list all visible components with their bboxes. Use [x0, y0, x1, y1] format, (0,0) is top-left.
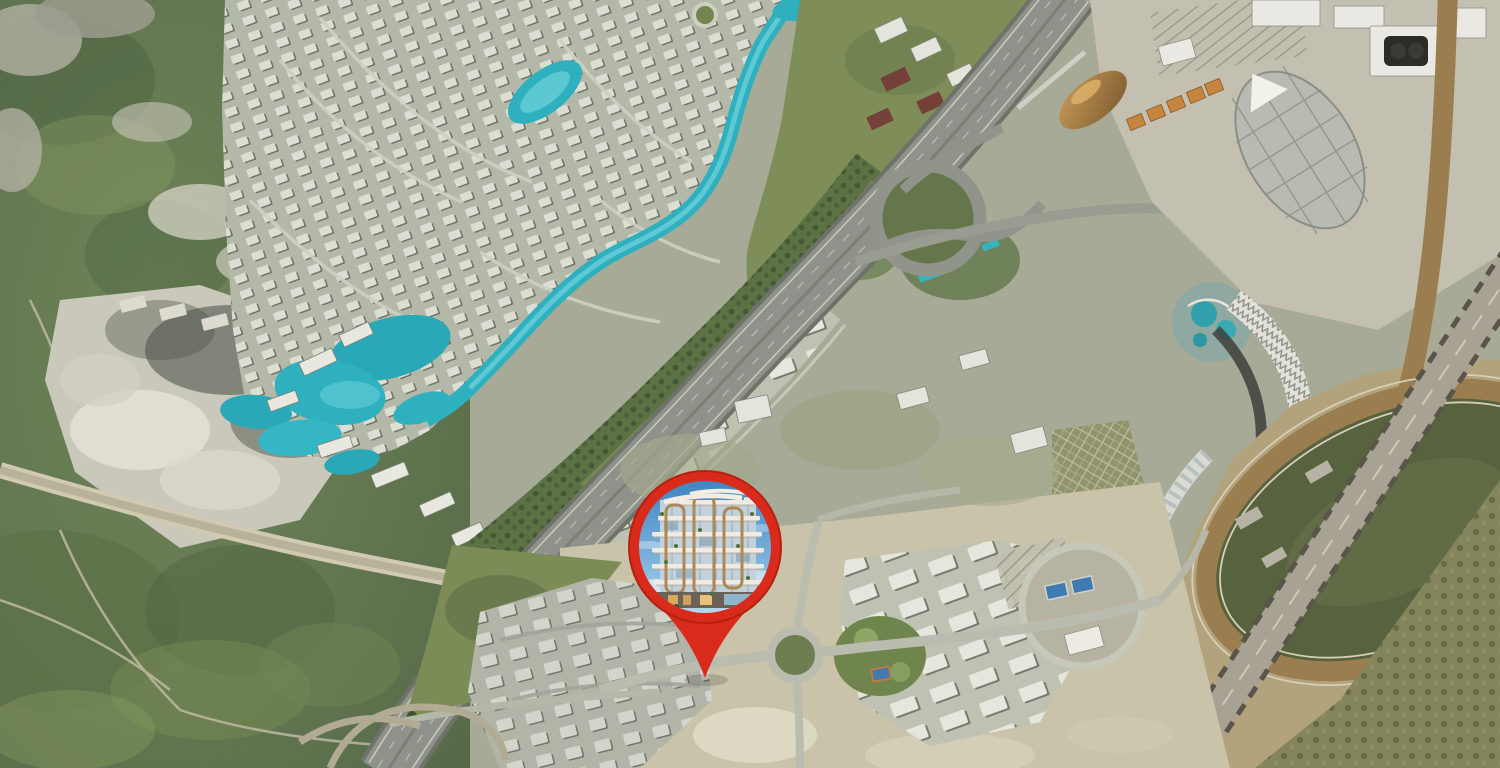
satellite-map	[0, 0, 1500, 768]
sports-court	[871, 667, 891, 682]
north-roundabout	[694, 4, 716, 26]
roundabout	[771, 631, 819, 679]
map-viewport	[0, 0, 1500, 768]
pin-shadow	[684, 674, 728, 686]
central-park	[834, 616, 926, 696]
